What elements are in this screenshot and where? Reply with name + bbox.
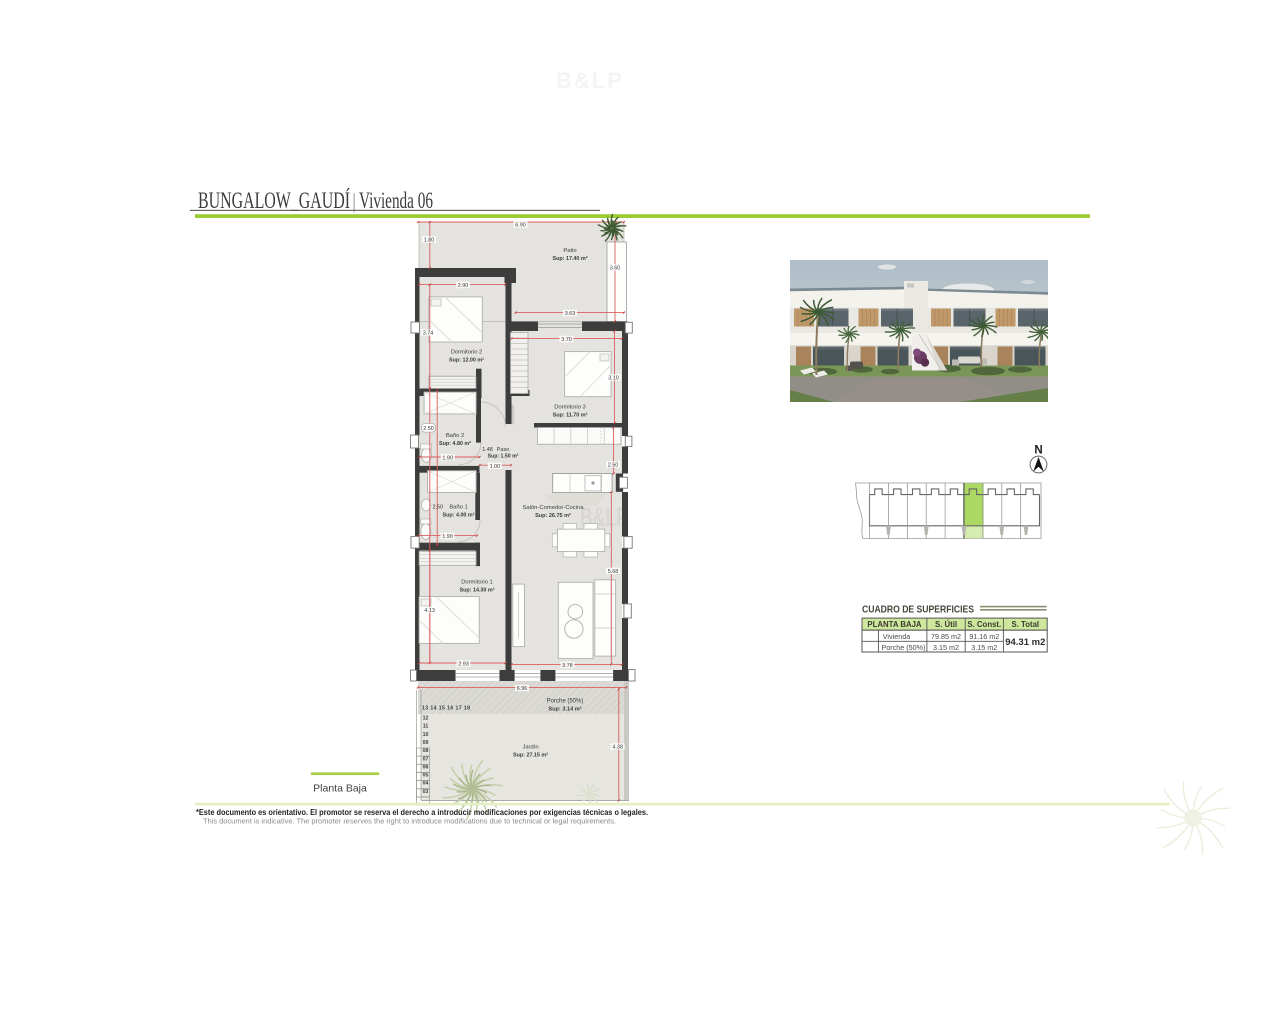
svg-text:94.31 m2: 94.31 m2: [1005, 637, 1045, 648]
svg-text:4.13: 4.13: [424, 608, 435, 614]
svg-text:3.10: 3.10: [608, 376, 619, 382]
svg-text:05: 05: [423, 773, 429, 779]
svg-text:Dormitorio 1: Dormitorio 1: [461, 580, 493, 586]
svg-text:Jardín: Jardín: [522, 745, 538, 751]
svg-text:Baño 1: Baño 1: [449, 505, 467, 511]
svg-text:Sup: 4.80 m²: Sup: 4.80 m²: [439, 441, 471, 447]
svg-text:04: 04: [423, 781, 429, 787]
svg-text:4.38: 4.38: [612, 745, 623, 751]
svg-text:Sup: 12.00 m²: Sup: 12.00 m²: [449, 358, 484, 364]
svg-text:Sup: 27.15 m²: Sup: 27.15 m²: [513, 753, 548, 759]
svg-text:This document is indicative. T: This document is indicative. The promote…: [203, 817, 616, 826]
svg-text:1.00: 1.00: [490, 464, 501, 470]
svg-text:3.70: 3.70: [561, 337, 572, 343]
svg-text:Salón-Comedor-Cocina: Salón-Comedor-Cocina: [523, 505, 585, 511]
svg-text:Patio: Patio: [563, 248, 576, 254]
svg-text:91.16 m2: 91.16 m2: [969, 632, 999, 641]
svg-text:Dormitorio 3: Dormitorio 3: [554, 405, 586, 411]
svg-text:Porche (50%): Porche (50%): [882, 643, 926, 652]
svg-text:3.15 m2: 3.15 m2: [933, 643, 959, 652]
svg-text:Sup: 3.14 m²: Sup: 3.14 m²: [548, 706, 581, 713]
svg-text:5.68: 5.68: [608, 569, 619, 575]
svg-text:6.90: 6.90: [515, 223, 526, 229]
svg-text:Sup: 1.50 m²: Sup: 1.50 m²: [488, 454, 519, 460]
svg-text:3.60: 3.60: [610, 266, 621, 272]
svg-text:08: 08: [423, 748, 429, 754]
svg-text:Planta Baja: Planta Baja: [313, 783, 367, 795]
svg-text:B&LP: B&LP: [556, 68, 624, 93]
svg-text:S. Const.: S. Const.: [967, 620, 1001, 629]
svg-text:Sup: 17.40 m²: Sup: 17.40 m²: [552, 256, 587, 262]
svg-text:12: 12: [423, 716, 429, 722]
svg-text:2.93: 2.93: [458, 662, 469, 668]
svg-text:S. Total: S. Total: [1012, 620, 1040, 629]
svg-text:N: N: [1034, 445, 1042, 457]
svg-text:03: 03: [423, 789, 429, 795]
svg-text:|: |: [352, 189, 356, 213]
svg-text:2.50: 2.50: [423, 426, 434, 432]
svg-text:2.50: 2.50: [608, 462, 619, 468]
svg-text:79.85 m2: 79.85 m2: [931, 632, 961, 641]
svg-text:6.96: 6.96: [517, 686, 528, 692]
svg-text:1.48: 1.48: [482, 447, 493, 453]
svg-text:13 14 15 16 17 18: 13 14 15 16 17 18: [422, 706, 470, 712]
svg-text:Sup: 4.00 m²: Sup: 4.00 m²: [442, 513, 474, 519]
svg-text:1.90: 1.90: [442, 455, 453, 461]
svg-text:Porche (50%): Porche (50%): [547, 699, 584, 705]
svg-text:09: 09: [423, 740, 429, 746]
svg-text:Dormitorio 2: Dormitorio 2: [451, 350, 483, 356]
svg-text:10: 10: [423, 732, 429, 738]
svg-text:3.78: 3.78: [562, 663, 573, 669]
svg-text:3.63: 3.63: [565, 311, 576, 317]
svg-text:S. Útil: S. Útil: [935, 620, 957, 629]
svg-text:07: 07: [423, 756, 429, 762]
svg-text:CUADRO DE SUPERFICIES: CUADRO DE SUPERFICIES: [862, 604, 974, 616]
svg-text:06: 06: [423, 764, 429, 770]
svg-text:3.15 m2: 3.15 m2: [971, 643, 997, 652]
svg-text:11: 11: [423, 724, 429, 730]
svg-text:Vivienda: Vivienda: [883, 632, 910, 641]
svg-text:Sup: 11.70 m²: Sup: 11.70 m²: [553, 413, 588, 419]
svg-text:3.74: 3.74: [423, 331, 434, 337]
svg-text:Sup: 14.30 m²: Sup: 14.30 m²: [459, 588, 494, 594]
svg-text:Sup: 26.75 m²: Sup: 26.75 m²: [535, 512, 571, 519]
svg-text:BUNGALOW_GAUDÍ: BUNGALOW_GAUDÍ: [198, 188, 350, 213]
svg-text:Baño 2: Baño 2: [446, 433, 464, 439]
svg-text:PLANTA BAJA: PLANTA BAJA: [867, 620, 922, 629]
svg-text:1.90: 1.90: [442, 534, 453, 540]
svg-text:2.50: 2.50: [433, 505, 444, 511]
svg-text:Vivienda 06: Vivienda 06: [359, 188, 433, 213]
svg-text:Paso: Paso: [497, 447, 510, 453]
svg-text:1.80: 1.80: [424, 238, 435, 244]
svg-text:2.90: 2.90: [458, 283, 469, 289]
